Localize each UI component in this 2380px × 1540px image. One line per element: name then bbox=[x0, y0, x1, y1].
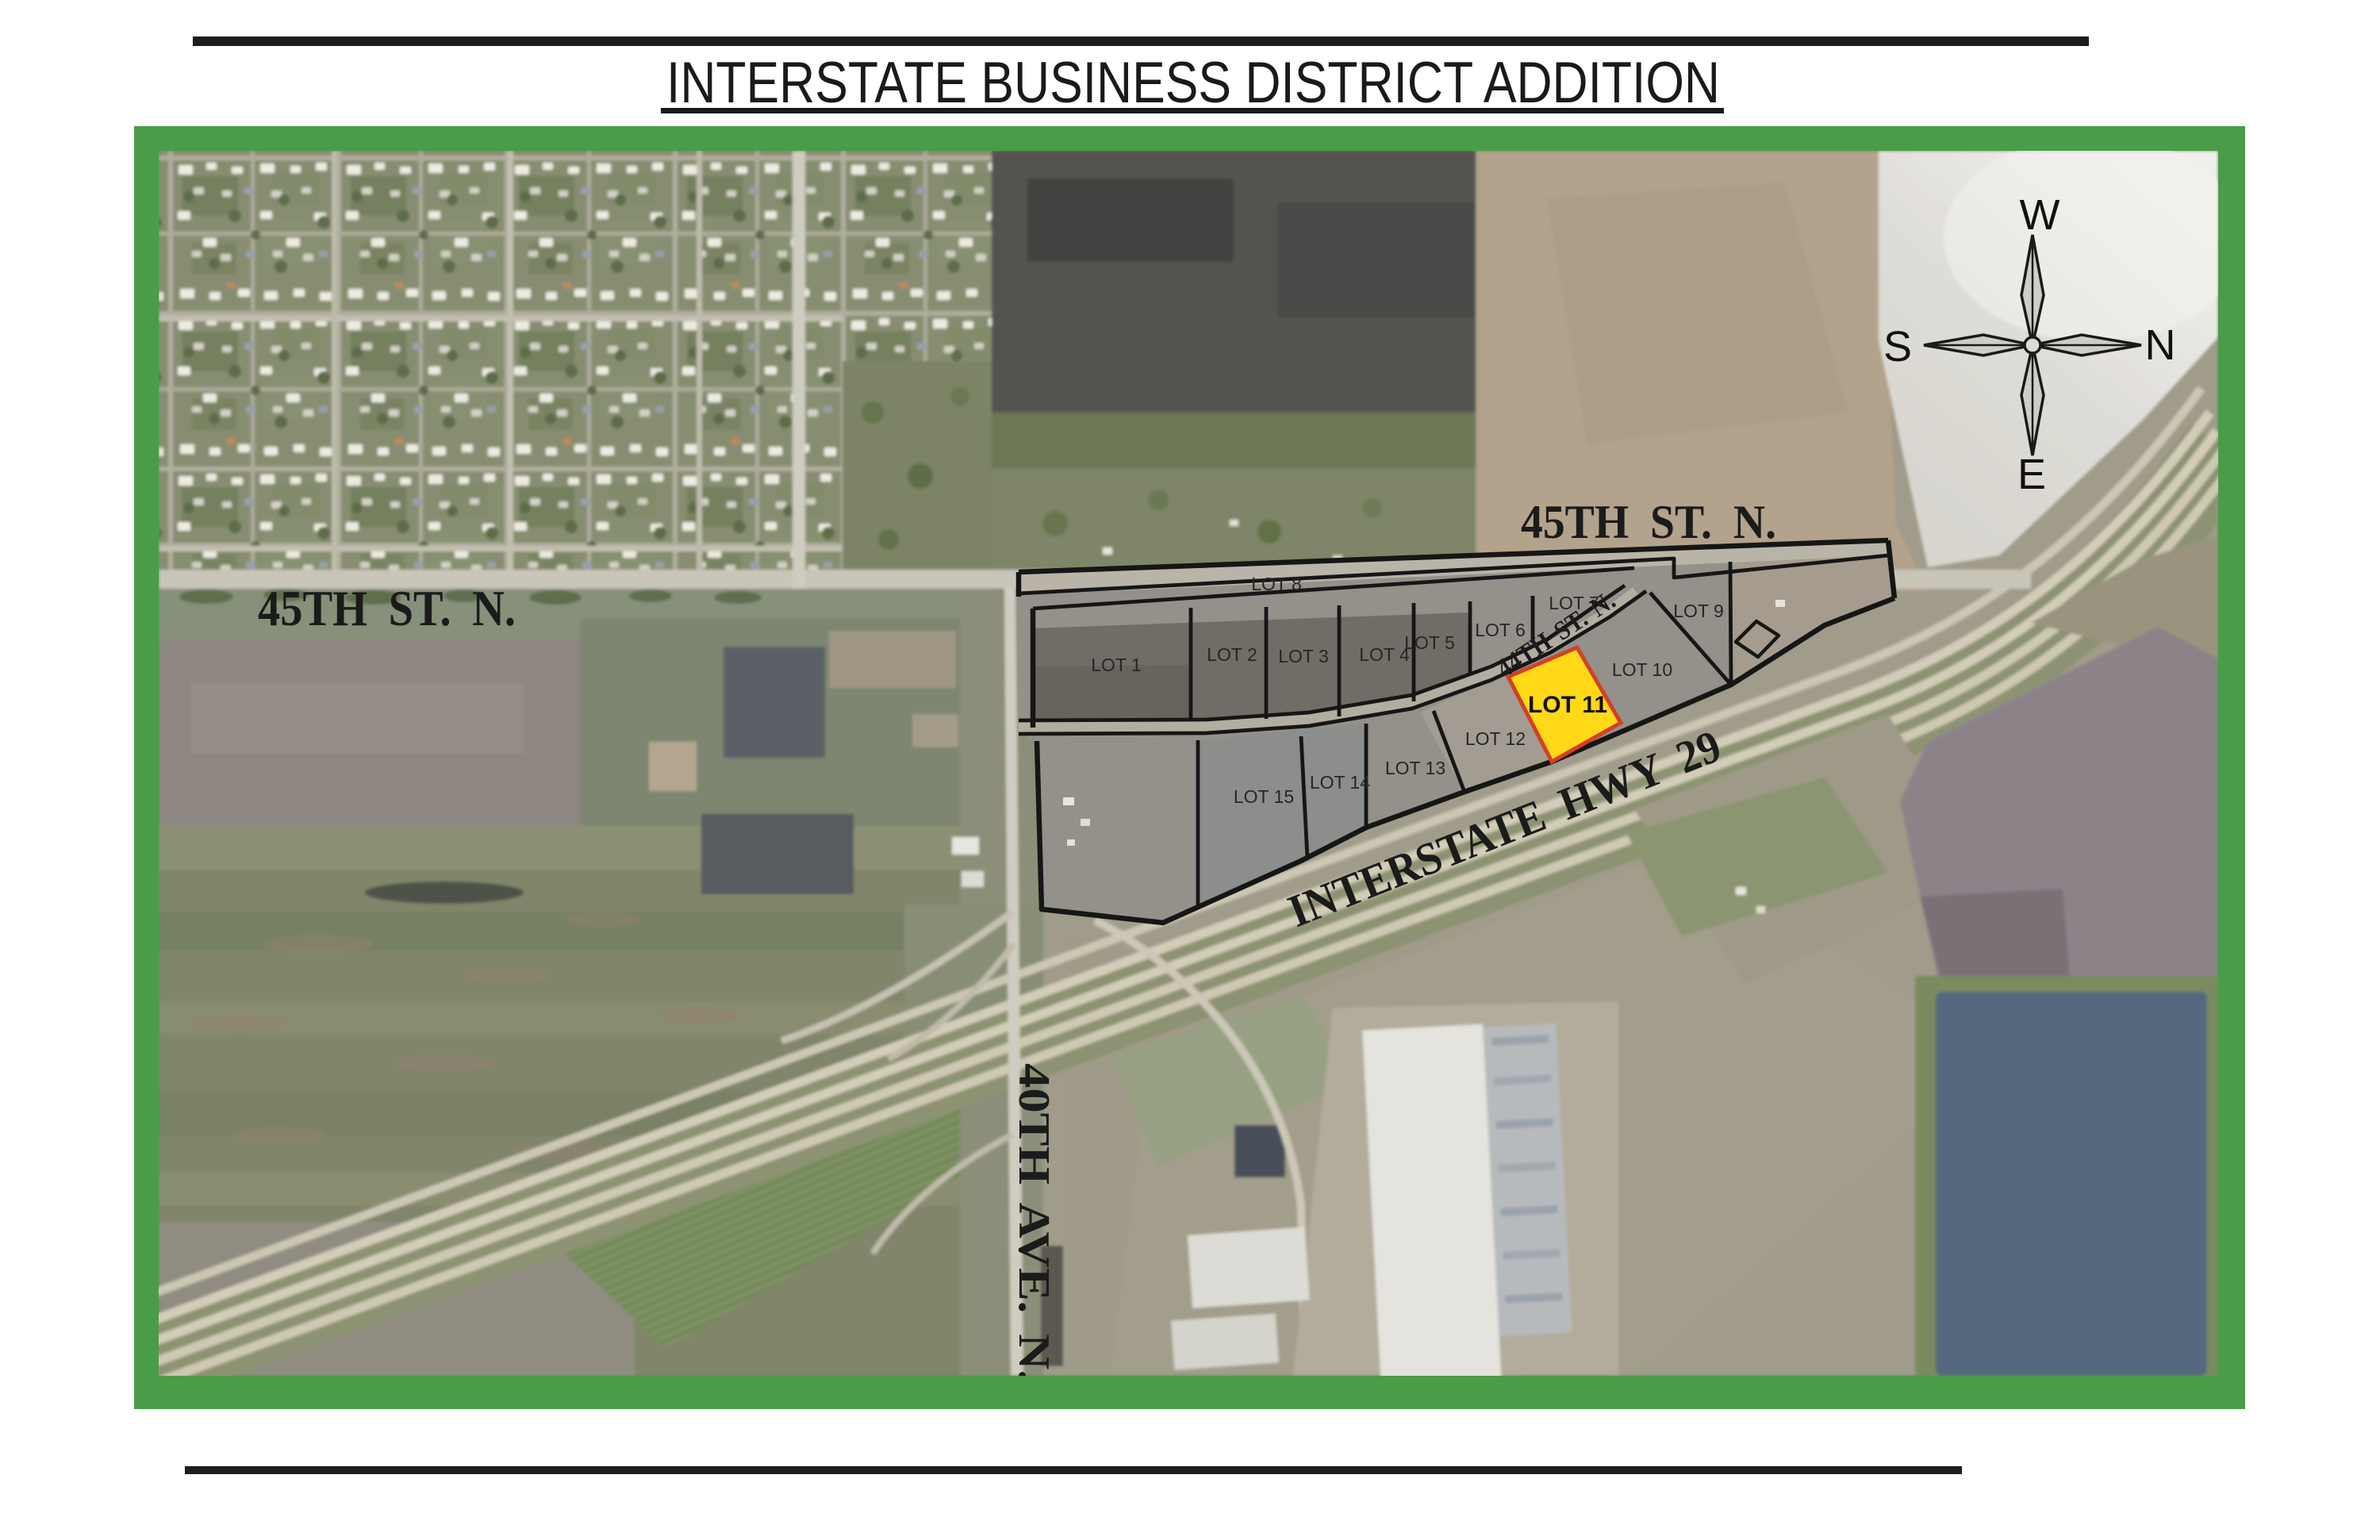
svg-text:LOT 15: LOT 15 bbox=[1234, 786, 1294, 807]
svg-text:LOT 2: LOT 2 bbox=[1207, 644, 1257, 665]
svg-text:LOT 6: LOT 6 bbox=[1475, 620, 1526, 640]
svg-text:LOT 3: LOT 3 bbox=[1278, 646, 1329, 666]
svg-text:INTERSTATE BUSINESS DISTRICT A: INTERSTATE BUSINESS DISTRICT ADDITION bbox=[666, 51, 1720, 115]
svg-text:LOT 4: LOT 4 bbox=[1359, 644, 1410, 665]
svg-text:40TH AVE. N.: 40TH AVE. N. bbox=[1009, 1063, 1058, 1382]
svg-text:E: E bbox=[2017, 451, 2046, 498]
svg-text:LOT 14: LOT 14 bbox=[1310, 772, 1370, 793]
svg-text:LOT 9: LOT 9 bbox=[1673, 601, 1724, 621]
svg-text:LOT 5: LOT 5 bbox=[1404, 632, 1455, 653]
svg-text:LOT 1: LOT 1 bbox=[1091, 655, 1142, 675]
svg-text:N: N bbox=[2145, 321, 2176, 369]
svg-text:45TH ST. N.: 45TH ST. N. bbox=[1521, 496, 1776, 548]
svg-text:LOT 10: LOT 10 bbox=[1612, 659, 1672, 680]
svg-text:45TH ST. N.: 45TH ST. N. bbox=[258, 580, 516, 636]
svg-text:LOT 8: LOT 8 bbox=[1251, 574, 1302, 594]
svg-text:S: S bbox=[1883, 323, 1912, 371]
svg-text:LOT 12: LOT 12 bbox=[1465, 728, 1526, 749]
svg-text:LOT 11: LOT 11 bbox=[1528, 692, 1607, 718]
svg-text:LOT 13: LOT 13 bbox=[1385, 758, 1445, 778]
svg-text:W: W bbox=[2020, 191, 2060, 239]
